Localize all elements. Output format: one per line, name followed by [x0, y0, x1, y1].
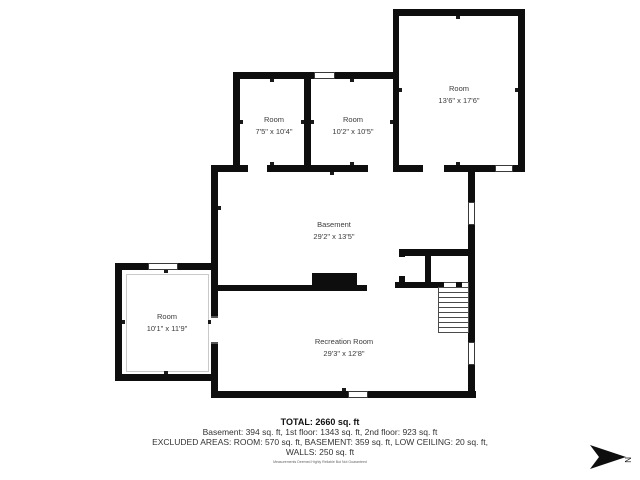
- wall-segment: [233, 72, 314, 79]
- dimension-tick: [270, 162, 274, 165]
- wall-segment: [115, 374, 218, 381]
- wall-segment: [468, 165, 475, 202]
- wall-segment: [468, 225, 475, 342]
- dimension-tick: [399, 88, 402, 92]
- summary-total: TOTAL: 2660 sq. ft: [0, 417, 640, 427]
- wall-segment: [233, 72, 240, 172]
- wall-segment: [399, 249, 405, 257]
- wall-segment: [393, 9, 525, 16]
- dimension-tick: [164, 270, 168, 273]
- wall-segment: [399, 249, 470, 256]
- room-dims: 29'2" x 13'5": [313, 231, 354, 243]
- dimension-tick: [240, 120, 243, 124]
- wall-segment: [211, 391, 348, 398]
- dimension-tick: [122, 320, 125, 324]
- wall-segment: [368, 391, 476, 398]
- room-name: Room: [147, 311, 188, 323]
- window: [314, 72, 335, 79]
- wall-segment: [304, 79, 311, 166]
- dimension-tick: [515, 88, 518, 92]
- dimension-tick: [270, 79, 274, 82]
- room-name: Room: [256, 114, 293, 126]
- room-dims: 10'2" x 10'5": [332, 126, 373, 138]
- wall-segment: [425, 256, 431, 282]
- summary-walls: WALLS: 250 sq. ft: [0, 447, 640, 457]
- dimension-tick: [350, 79, 354, 82]
- wall-segment: [513, 165, 525, 172]
- room-dims: 10'1" x 11'9": [147, 323, 188, 335]
- room-name: Basement: [313, 219, 354, 231]
- room-name: Recreation Room: [315, 336, 373, 348]
- wall-segment: [211, 342, 218, 398]
- dimension-tick: [311, 120, 314, 124]
- dimension-tick: [390, 120, 393, 124]
- dimension-tick: [456, 16, 460, 19]
- window: [148, 263, 178, 270]
- stair-post: [456, 282, 462, 287]
- summary-excluded: EXCLUDED AREAS: ROOM: 570 sq. ft, BASEME…: [0, 437, 640, 447]
- room-label: Room 10'2" x 10'5": [332, 114, 373, 138]
- summary-floors: Basement: 394 sq. ft, 1st floor: 1343 sq…: [0, 427, 640, 437]
- wall-segment: [518, 9, 525, 172]
- door-opening: [211, 316, 218, 318]
- dimension-tick: [330, 172, 334, 175]
- door-opening: [211, 342, 218, 344]
- room-label: Room 13'6" x 17'6": [438, 83, 479, 107]
- window: [468, 342, 475, 365]
- dimension-tick: [456, 162, 460, 165]
- room-dims: 13'6" x 17'6": [438, 95, 479, 107]
- chimney: [312, 273, 357, 291]
- north-label: N: [623, 457, 632, 463]
- room-label: Recreation Room 29'3" x 12'8": [315, 336, 373, 360]
- wall-segment: [267, 165, 368, 172]
- wall-segment: [217, 285, 312, 291]
- dimension-tick: [164, 371, 168, 374]
- wall-segment: [393, 165, 423, 172]
- dimension-tick: [301, 120, 304, 124]
- window: [468, 202, 475, 225]
- room-label: Room 7'5" x 10'4": [256, 114, 293, 138]
- wall-segment: [335, 72, 399, 79]
- north-arrow-icon: N: [588, 441, 636, 473]
- dimension-tick: [208, 320, 211, 324]
- window: [348, 391, 368, 398]
- room-label: Room 10'1" x 11'9": [147, 311, 188, 335]
- summary-disclaimer: Measurements Deemed Highly Reliable But …: [160, 460, 480, 465]
- stair-post: [438, 282, 444, 287]
- room-label: Basement 29'2" x 13'5": [313, 219, 354, 243]
- floorplan-canvas: Room 7'5" x 10'4" Room 10'2" x 10'5" Roo…: [0, 0, 640, 480]
- dimension-tick: [218, 206, 221, 210]
- wall-segment: [357, 285, 367, 291]
- dimension-tick: [350, 162, 354, 165]
- staircase: [438, 282, 469, 333]
- wall-segment: [211, 165, 218, 318]
- dimension-tick: [342, 388, 346, 391]
- wall-segment: [115, 263, 122, 381]
- wall-segment: [399, 276, 405, 288]
- room-dims: 29'3" x 12'8": [315, 348, 373, 360]
- window: [495, 165, 513, 172]
- wall-segment: [178, 263, 218, 270]
- summary-block: TOTAL: 2660 sq. ft Basement: 394 sq. ft,…: [0, 417, 640, 469]
- room-dims: 7'5" x 10'4": [256, 126, 293, 138]
- room-name: Room: [438, 83, 479, 95]
- room-name: Room: [332, 114, 373, 126]
